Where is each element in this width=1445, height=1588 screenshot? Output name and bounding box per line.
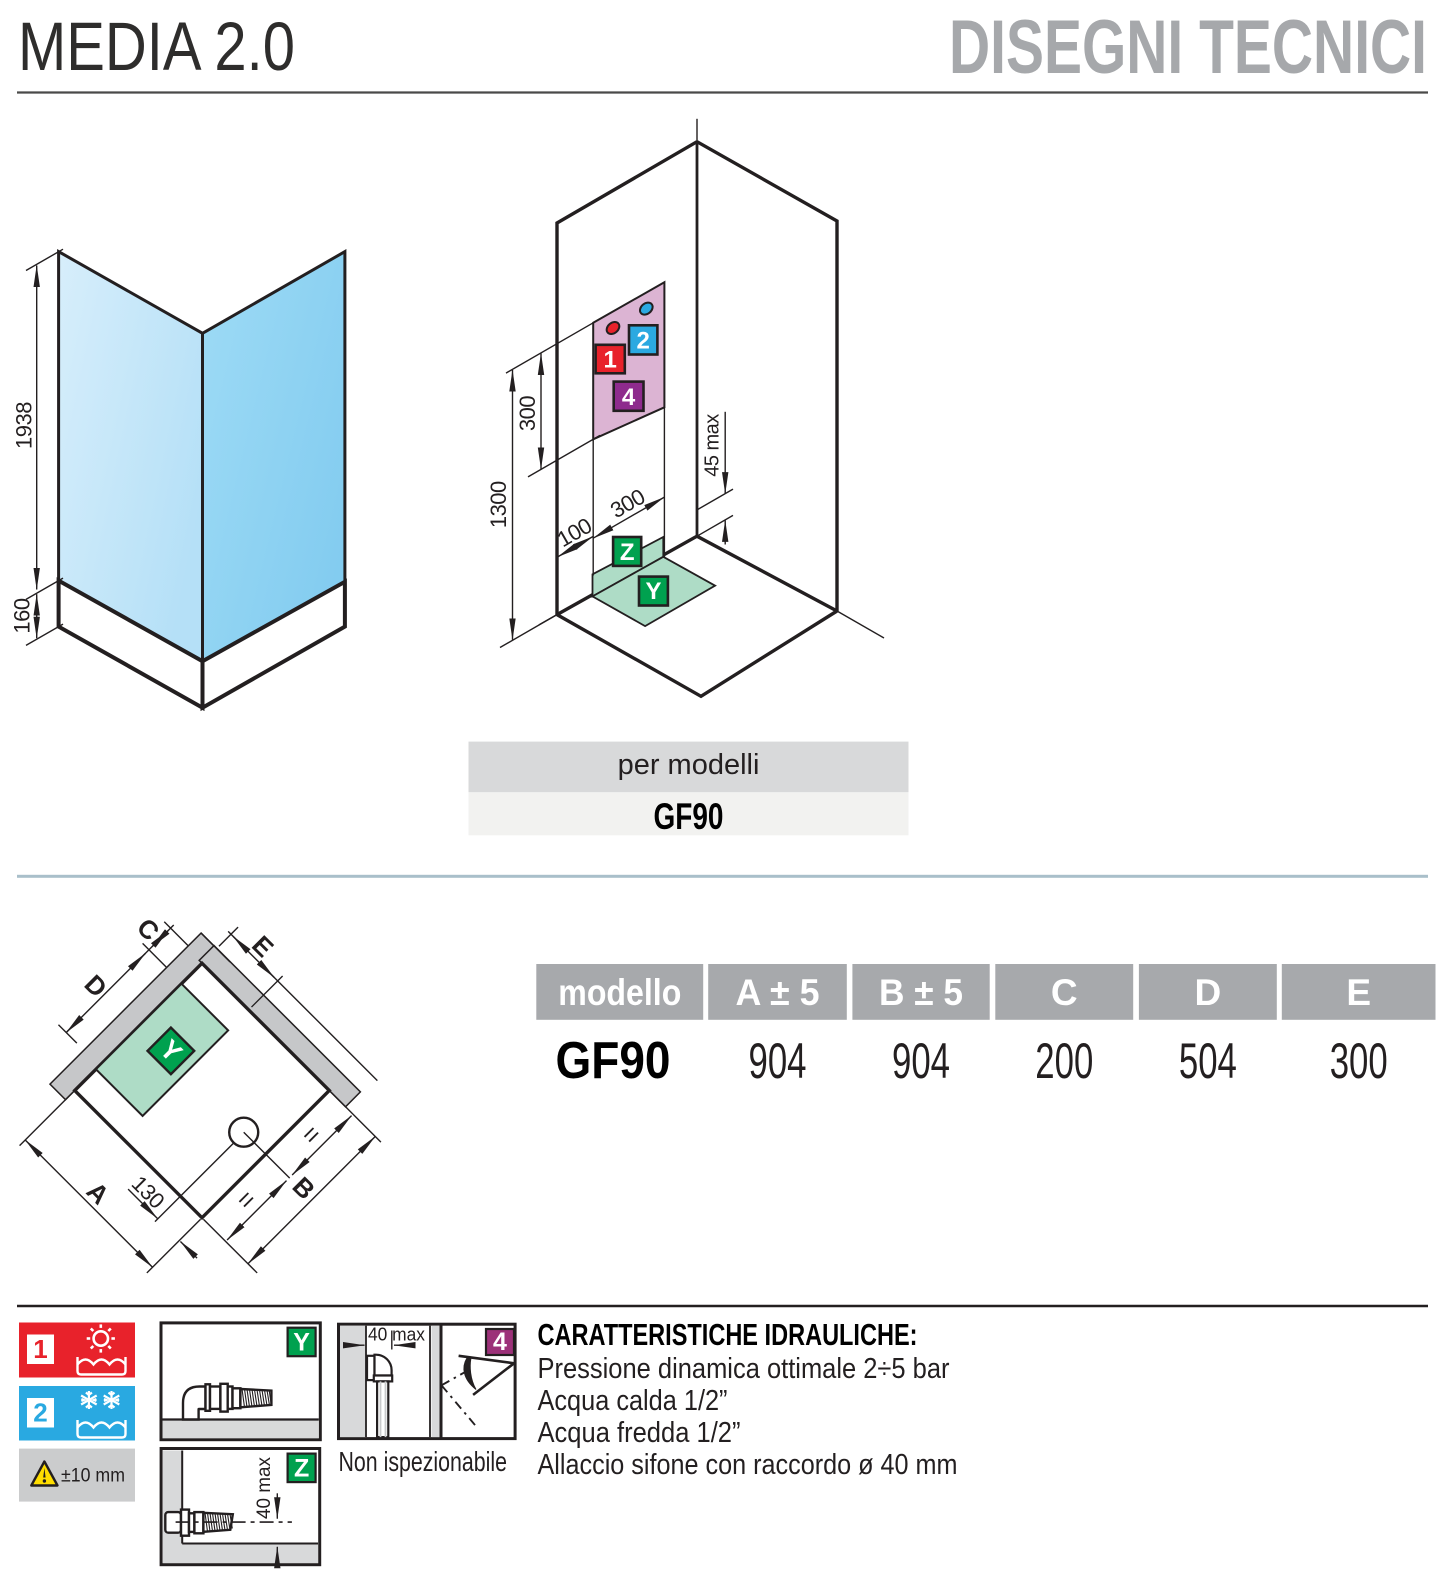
svg-text:Y: Y [645, 578, 661, 605]
svg-text:904: 904 [749, 1033, 807, 1089]
svg-text:B: B [287, 1171, 321, 1205]
svg-text:GF90: GF90 [654, 796, 724, 837]
svg-text:40 max: 40 max [254, 1457, 275, 1519]
svg-text:2: 2 [637, 328, 650, 355]
svg-text:Allaccio sifone con raccordo ø: Allaccio sifone con raccordo ø 40 mm [538, 1449, 958, 1481]
svg-text:DISEGNI TECNICI: DISEGNI TECNICI [949, 5, 1427, 90]
svg-text:C: C [131, 912, 166, 947]
svg-text:A: A [81, 1176, 116, 1211]
svg-text:300: 300 [515, 396, 540, 431]
svg-text:Z: Z [294, 1455, 309, 1483]
svg-text:CARATTERISTICHE IDRAULICHE:: CARATTERISTICHE IDRAULICHE: [538, 1317, 918, 1352]
svg-text:160: 160 [10, 598, 35, 633]
svg-text:GF90: GF90 [556, 1032, 671, 1090]
svg-text:D: D [79, 969, 113, 1003]
svg-text:1938: 1938 [12, 402, 37, 449]
svg-text:Z: Z [620, 539, 635, 566]
svg-text:904: 904 [892, 1033, 950, 1089]
svg-text:300: 300 [606, 484, 649, 523]
svg-text:Y: Y [293, 1329, 310, 1357]
svg-text:Acqua calda 1/2”: Acqua calda 1/2” [538, 1385, 728, 1417]
svg-text:1300: 1300 [486, 481, 511, 528]
svg-text:40 max: 40 max [368, 1325, 425, 1345]
svg-text:=: = [296, 1119, 328, 1151]
svg-text:1: 1 [33, 1334, 47, 1364]
svg-text:Acqua fredda 1/2”: Acqua fredda 1/2” [538, 1417, 741, 1449]
svg-text:504: 504 [1179, 1033, 1237, 1089]
svg-text:Non ispezionabile: Non ispezionabile [339, 1446, 508, 1477]
svg-text:modello: modello [558, 972, 681, 1013]
svg-text:4: 4 [493, 1328, 507, 1356]
svg-text:4: 4 [622, 384, 636, 411]
svg-text:2: 2 [33, 1398, 47, 1428]
svg-text:Pressione dinamica ottimale 2÷: Pressione dinamica ottimale 2÷5 bar [538, 1353, 950, 1385]
svg-text:MEDIA 2.0: MEDIA 2.0 [18, 8, 295, 85]
svg-text:±10 mm: ±10 mm [61, 1466, 125, 1487]
svg-text:1: 1 [604, 347, 617, 374]
svg-text:300: 300 [1330, 1033, 1388, 1089]
svg-text:A ± 5: A ± 5 [736, 972, 820, 1013]
svg-text:E: E [246, 930, 279, 963]
svg-text:200: 200 [1035, 1033, 1093, 1089]
svg-text:45 max: 45 max [702, 414, 724, 477]
svg-text:D: D [1195, 972, 1222, 1013]
svg-text:=: = [231, 1184, 263, 1216]
svg-text:100: 100 [553, 513, 596, 552]
svg-text:C: C [1051, 972, 1078, 1013]
svg-text:per modelli: per modelli [618, 749, 760, 781]
svg-text:B ± 5: B ± 5 [879, 972, 963, 1013]
svg-text:E: E [1346, 972, 1371, 1013]
